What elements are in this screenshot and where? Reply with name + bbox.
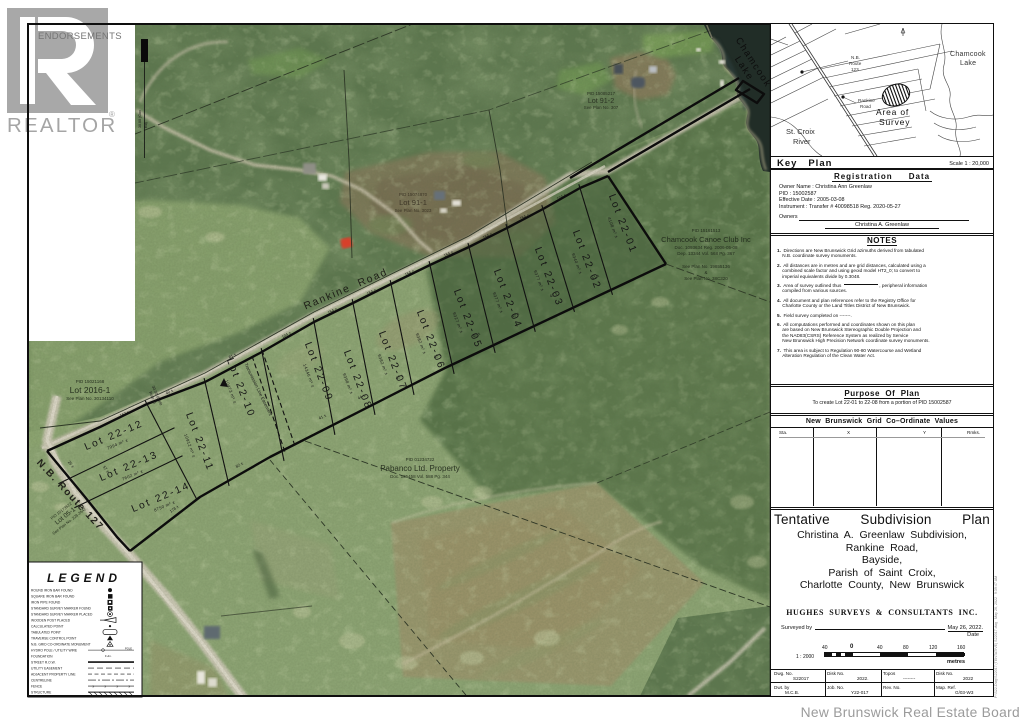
- svg-text:Dep. 13344 Vol. 568 Pg. 367: Dep. 13344 Vol. 568 Pg. 367: [677, 251, 735, 256]
- svg-text:STREET R.O.W.: STREET R.O.W.: [31, 661, 56, 665]
- svg-text:®: ®: [109, 110, 115, 119]
- svg-text:River: River: [793, 137, 811, 146]
- svg-text:TRAVERSE CONTROL POINT: TRAVERSE CONTROL POINT: [31, 637, 76, 641]
- svg-text:STANDARD SURVEY MARKER FOUND: STANDARD SURVEY MARKER FOUND: [31, 607, 92, 611]
- svg-text:F-dn.: F-dn.: [105, 654, 112, 658]
- svg-text:FENCE: FENCE: [31, 685, 43, 689]
- svg-text:UTILITY EASEMENT: UTILITY EASEMENT: [31, 667, 62, 671]
- svg-text:LEGEND: LEGEND: [47, 571, 121, 585]
- svg-text:HYDRO POLE / UTILITY WIRE: HYDRO POLE / UTILITY WIRE: [31, 649, 78, 653]
- svg-text:30.00 (Gov: 30.00 (Gov: [138, 110, 142, 128]
- svg-text:See Plan No. 38C320: See Plan No. 38C320: [684, 276, 728, 281]
- svg-text:See Plan No. 19855136: See Plan No. 19855136: [682, 264, 730, 269]
- svg-text:FOUNDATION: FOUNDATION: [31, 655, 53, 659]
- svg-text:Rankine: Rankine: [858, 98, 875, 103]
- svg-text:See Plan No. 3023: See Plan No. 3023: [395, 208, 432, 213]
- svg-text:Chamcook: Chamcook: [950, 51, 986, 58]
- svg-text:Survey: Survey: [879, 117, 910, 127]
- svg-text:PID 15021168: PID 15021168: [76, 379, 105, 384]
- svg-text:Area of: Area of: [876, 107, 909, 117]
- svg-text:Lot 91-2: Lot 91-2: [588, 96, 614, 105]
- svg-text:See Plan No. 30134110: See Plan No. 30134110: [66, 396, 114, 401]
- svg-text:Lot 91-1: Lot 91-1: [399, 198, 427, 207]
- svg-text:WOODEN POST PLACED: WOODEN POST PLACED: [31, 619, 71, 623]
- svg-text:STANDARD SURVEY MARKER PLACED: STANDARD SURVEY MARKER PLACED: [31, 613, 93, 617]
- svg-text:Doc. 135458 Vol. 588 Pg. 344: Doc. 135458 Vol. 588 Pg. 344: [390, 474, 450, 479]
- svg-text:PID 15074870: PID 15074870: [399, 192, 428, 197]
- svg-text:ROUND IRON BAR FOUND: ROUND IRON BAR FOUND: [31, 589, 73, 593]
- svg-text:N.B. GRID CO-ORDINATE MONUMENT: N.B. GRID CO-ORDINATE MONUMENT: [31, 643, 91, 647]
- svg-text:Lot 2016-1: Lot 2016-1: [70, 385, 111, 395]
- svg-text:Chamcook Canoe Club Inc: Chamcook Canoe Club Inc: [661, 235, 751, 244]
- svg-text:CENTRELINE: CENTRELINE: [31, 679, 53, 683]
- svg-text:POLE: POLE: [125, 646, 132, 650]
- svg-text:PID 15161513: PID 15161513: [692, 228, 721, 233]
- svg-text:ENDORSEMENTS: ENDORSEMENTS: [38, 31, 122, 42]
- svg-text:Route: Route: [849, 61, 862, 66]
- svg-text:&: &: [704, 270, 707, 275]
- svg-text:123: 123: [851, 67, 859, 72]
- svg-text:STRUCTURE: STRUCTURE: [31, 691, 52, 695]
- svg-text:Road: Road: [860, 104, 871, 109]
- svg-text:Doc. 1093634 Reg. 2006-05-08: Doc. 1093634 Reg. 2006-05-08: [674, 245, 738, 250]
- svg-text:ADJACENT PROPERTY LINE: ADJACENT PROPERTY LINE: [31, 673, 76, 677]
- svg-text:TABULATED POINT: TABULATED POINT: [31, 631, 61, 635]
- svg-text:N.B.: N.B.: [851, 55, 860, 60]
- svg-text:Rd): Rd): [144, 122, 148, 128]
- svg-text:SQUARE IRON BAR FOUND: SQUARE IRON BAR FOUND: [31, 595, 75, 599]
- svg-text:IRON PIPE FOUND: IRON PIPE FOUND: [31, 601, 61, 605]
- svg-text:See Plan No. 307: See Plan No. 307: [584, 105, 619, 110]
- svg-text:REALTOR: REALTOR: [7, 114, 117, 137]
- svg-text:Pabanco Ltd. Property: Pabanco Ltd. Property: [380, 464, 460, 473]
- svg-text:St. Croix: St. Croix: [786, 127, 815, 136]
- svg-text:PID 01234722: PID 01234722: [406, 457, 435, 462]
- svg-text:CALCULATED POINT: CALCULATED POINT: [31, 625, 64, 629]
- svg-text:Lake: Lake: [960, 60, 976, 67]
